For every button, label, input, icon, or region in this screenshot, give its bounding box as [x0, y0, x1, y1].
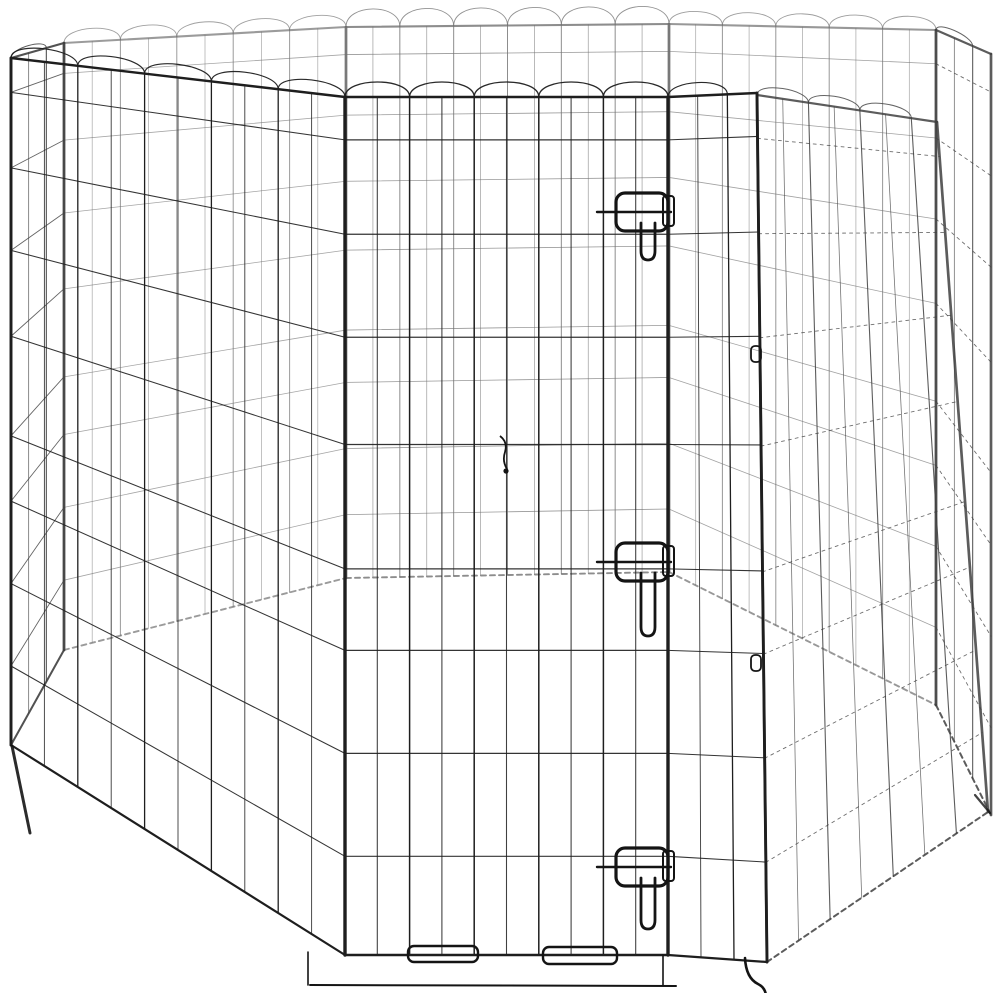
pen-panel-front-left-diagonal	[11, 48, 345, 955]
pen-panel-right-back-fold	[936, 27, 991, 815]
pet-pen-drawing	[0, 0, 1000, 993]
pen-panel-right-side	[757, 88, 988, 962]
product-image	[0, 0, 1000, 993]
pen-panel-left-side-folded	[11, 43, 64, 745]
door-hardware	[12, 193, 990, 993]
pen-panel-back	[346, 6, 669, 578]
pen-panel-front-right-diagonal	[668, 82, 767, 962]
pen-panel-back-left-diagonal	[64, 15, 346, 650]
